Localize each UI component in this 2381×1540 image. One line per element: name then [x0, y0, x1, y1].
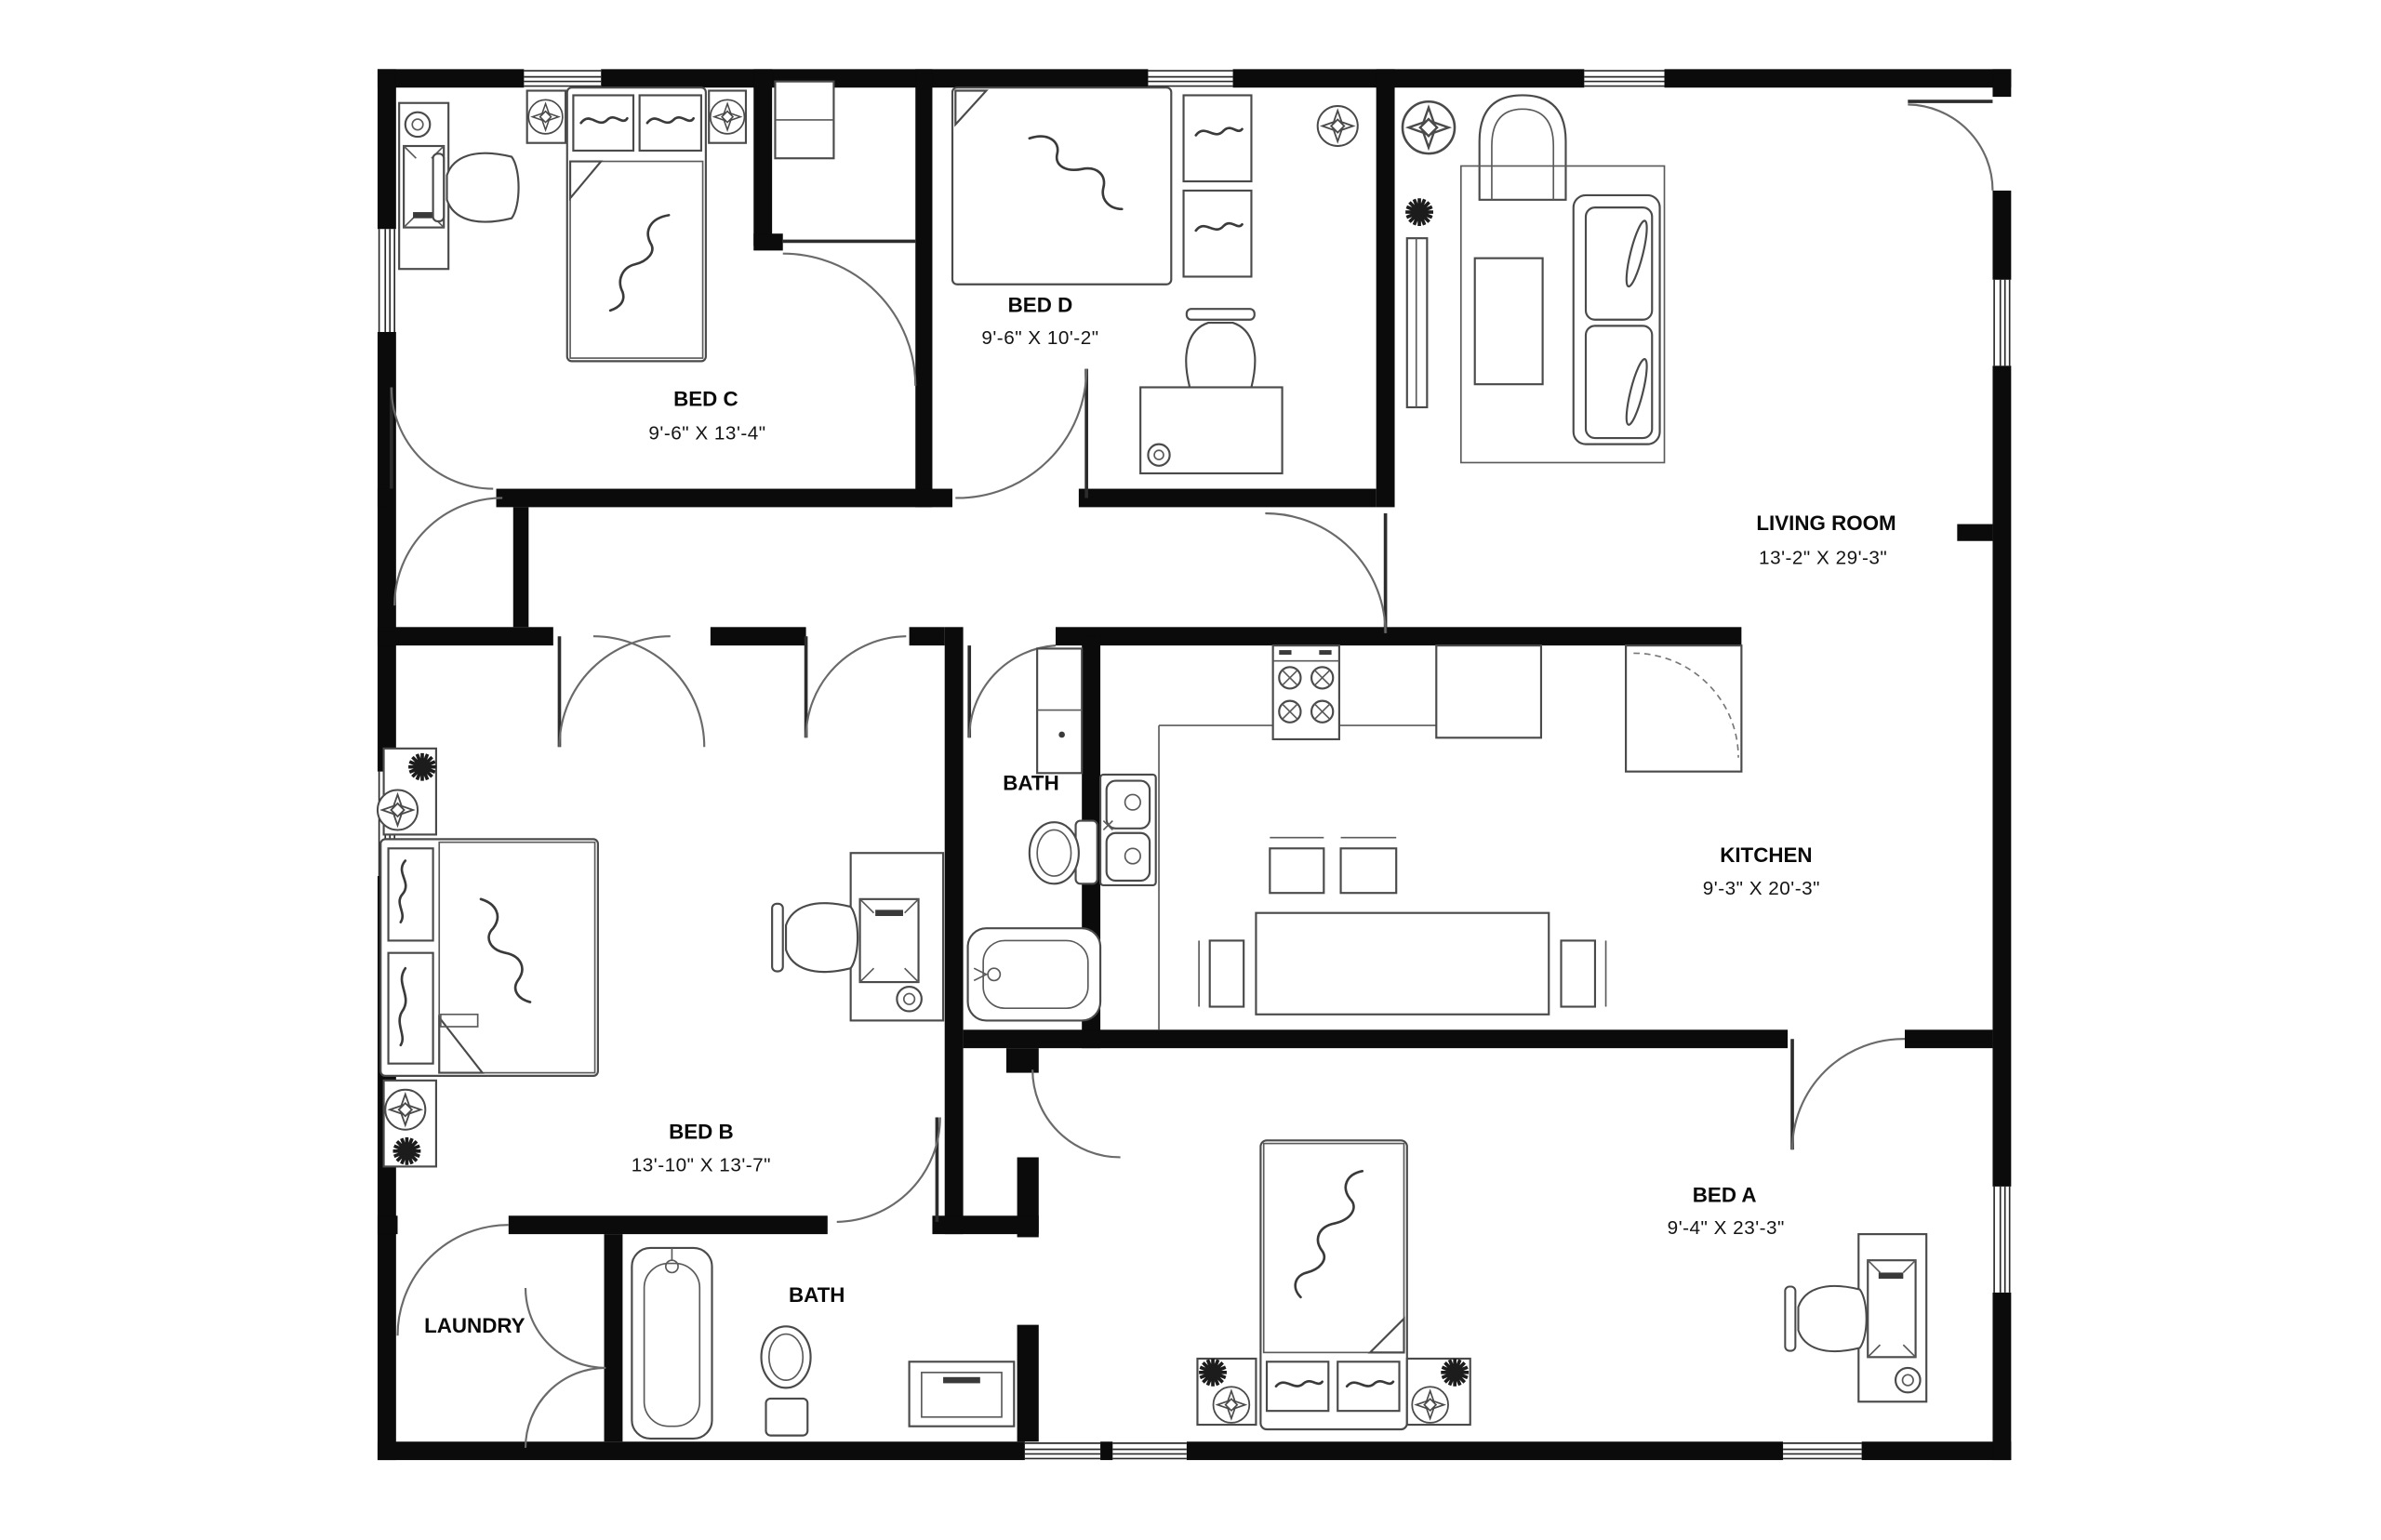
floor-plan-image: BED C 9'-6" X 13'-4" BED D 9'-6" X 10'-2…	[0, 0, 2381, 1540]
label-bed-c: BED C 9'-6" X 13'-4"	[648, 387, 765, 444]
floor-plan-page: BED C 9'-6" X 13'-4" BED D 9'-6" X 10'-2…	[0, 0, 2381, 1540]
room-name-bed-c: BED C	[673, 387, 738, 410]
room-name-bed-a: BED A	[1693, 1183, 1757, 1206]
room-name-laundry: LAUNDRY	[424, 1314, 525, 1337]
label-bed-b: BED B 13'-10" X 13'-7"	[632, 1121, 771, 1176]
room-dims-bed-c: 9'-6" X 13'-4"	[648, 423, 765, 445]
beda-north-door	[1792, 1039, 1905, 1149]
room-name-bath-upper: BATH	[1003, 772, 1058, 795]
window-beda-right	[1994, 1187, 2010, 1293]
bath-lower-fixtures	[632, 1248, 1014, 1439]
room-name-bed-d: BED D	[1008, 294, 1073, 317]
label-living-room: LIVING ROOM 13'-2" X 29'-3"	[1756, 511, 1895, 568]
room-name-bed-b: BED B	[669, 1121, 734, 1144]
beda-furniture	[1197, 1140, 1926, 1429]
tub-upper	[968, 928, 1100, 1020]
room-name-kitchen: KITCHEN	[1720, 843, 1812, 867]
window-bedc-left	[379, 229, 395, 332]
bedb-furniture	[378, 749, 943, 1167]
window-beda-bottom-right	[1783, 1443, 1862, 1459]
window-living-right	[1994, 280, 2010, 366]
kitchen-furniture	[1100, 645, 1741, 1029]
kitchen-sink	[1100, 775, 1156, 885]
bath-lower-door	[837, 1118, 940, 1222]
dining-table	[1199, 838, 1605, 1015]
bath-upper-fixtures	[968, 648, 1100, 1020]
room-name-living-room: LIVING ROOM	[1756, 511, 1895, 535]
toilet-lower	[762, 1326, 811, 1435]
label-kitchen: KITCHEN 9'-3" X 20'-3"	[1703, 843, 1820, 899]
beda-west-door	[1032, 1069, 1120, 1157]
window-bedc-top	[524, 71, 601, 86]
entry-door	[1908, 101, 1992, 191]
bedb-closet-doors	[559, 636, 704, 747]
window-bedd-top	[1148, 71, 1232, 86]
bedb-entry-door	[806, 636, 907, 737]
room-dims-bed-b: 13'-10" X 13'-7"	[632, 1154, 771, 1175]
beda-desk	[1785, 1234, 1926, 1401]
room-dims-living-room: 13'-2" X 29'-3"	[1759, 548, 1887, 569]
living-room-furniture	[1403, 95, 1665, 462]
hall-living-door	[1265, 513, 1385, 633]
bedd-furniture	[952, 87, 1358, 473]
room-dims-bed-d: 9'-6" X 10'-2"	[981, 327, 1098, 349]
sink-lower	[910, 1361, 1015, 1426]
fridge	[1626, 645, 1741, 772]
bedd-entry-door	[955, 369, 1086, 498]
bedc-entry-door	[392, 387, 502, 605]
room-name-bath-lower: BATH	[789, 1283, 845, 1307]
sofa	[1574, 195, 1660, 445]
window-living-top	[1584, 71, 1664, 86]
tub-lower	[632, 1248, 712, 1439]
toilet-upper	[1030, 821, 1097, 884]
room-dims-kitchen: 9'-3" X 20'-3"	[1703, 878, 1820, 899]
label-bed-d: BED D 9'-6" X 10'-2"	[981, 294, 1098, 350]
bedb-desk	[772, 853, 943, 1020]
room-dims-bed-a: 9'-4" X 23'-3"	[1668, 1217, 1785, 1239]
label-bed-a: BED A 9'-4" X 23'-3"	[1668, 1183, 1785, 1239]
bedc-closet-door	[783, 241, 915, 385]
stove	[1273, 645, 1339, 739]
